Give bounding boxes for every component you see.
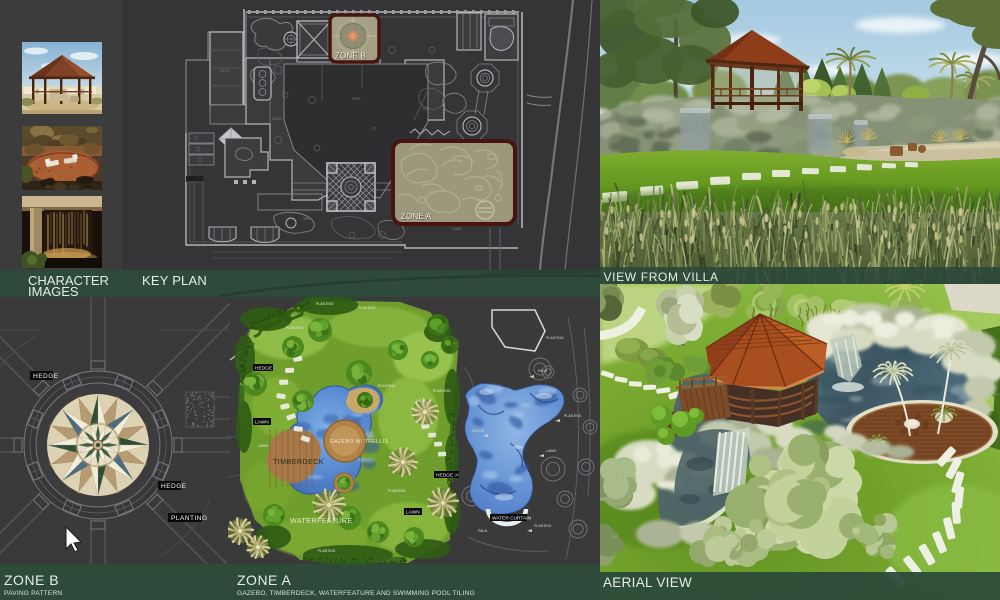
- svg-text:PLANTING: PLANTING: [546, 336, 564, 340]
- svg-text:ZONE A: ZONE A: [401, 212, 432, 221]
- svg-text:PLANTING: PLANTING: [171, 515, 208, 522]
- svg-text:PLANTING: PLANTING: [358, 306, 376, 310]
- svg-text:LAWN: LAWN: [272, 117, 282, 121]
- svg-text:PLANTING: PLANTING: [286, 326, 304, 330]
- svg-text:PLANTING: PLANTING: [318, 549, 336, 553]
- svg-text:GAZEBO W/ TRELLIS: GAZEBO W/ TRELLIS: [330, 439, 389, 445]
- svg-text:LAWN: LAWN: [416, 399, 426, 403]
- svg-text:HEDGE 'A': HEDGE 'A': [436, 473, 460, 479]
- svg-text:HEDGE: HEDGE: [33, 373, 59, 380]
- svg-text:PLANTING: PLANTING: [388, 489, 406, 493]
- svg-text:WATERFEATURE: WATERFEATURE: [290, 518, 353, 525]
- svg-text:ZONE B: ZONE B: [335, 52, 366, 61]
- svg-text:POOL: POOL: [352, 97, 361, 101]
- svg-text:PLANTING: PLANTING: [316, 302, 334, 306]
- svg-text:WATER CURTAIN: WATER CURTAIN: [492, 516, 532, 522]
- svg-text:GDN: GDN: [422, 107, 430, 111]
- svg-text:VILLA: VILLA: [220, 69, 230, 73]
- svg-text:LAWN: LAWN: [258, 444, 268, 448]
- svg-text:LAWN: LAWN: [406, 510, 420, 516]
- svg-text:HEDGE: HEDGE: [472, 429, 485, 433]
- svg-text:TIMBERDECK: TIMBERDECK: [273, 459, 324, 466]
- svg-text:HEDGE: HEDGE: [161, 483, 187, 490]
- svg-text:PLANTING: PLANTING: [564, 414, 582, 418]
- svg-text:PLANTING: PLANTING: [378, 384, 396, 388]
- svg-text:HEDGE: HEDGE: [255, 366, 272, 372]
- svg-text:LAWN: LAWN: [255, 420, 269, 426]
- svg-text:LAWN: LAWN: [546, 449, 556, 453]
- svg-text:PLANTING: PLANTING: [534, 524, 552, 528]
- svg-text:PLANTING: PLANTING: [433, 389, 451, 393]
- svg-text:PALM: PALM: [478, 529, 487, 533]
- svg-text:PALM: PALM: [538, 369, 547, 373]
- svg-text:TERR: TERR: [302, 217, 311, 221]
- svg-text:LAWN: LAWN: [452, 227, 462, 231]
- svg-text:CT: CT: [372, 127, 376, 131]
